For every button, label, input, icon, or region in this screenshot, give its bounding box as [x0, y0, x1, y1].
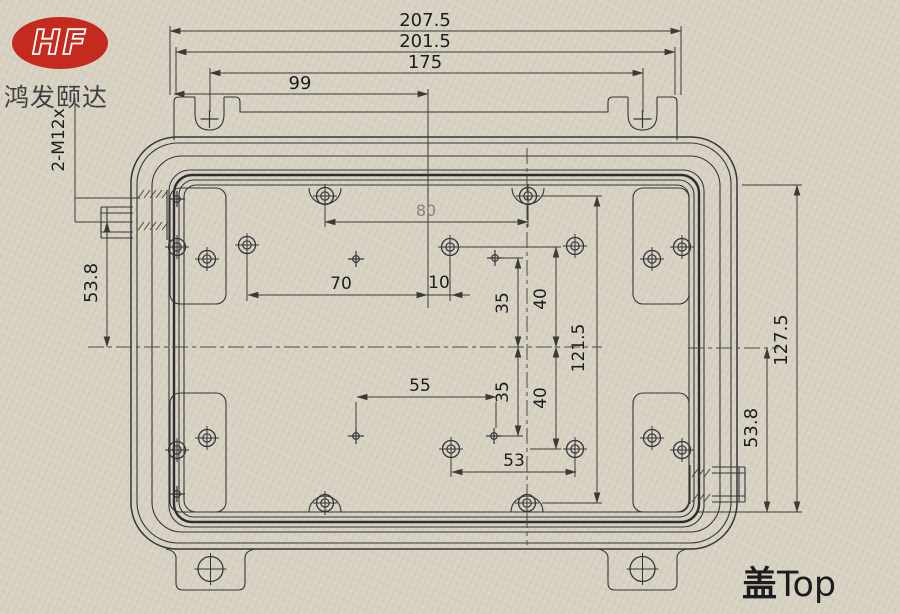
dim-label-35-upper: 35: [493, 292, 513, 314]
dim-label-slot-span: 175: [408, 52, 442, 73]
dim-label-53-8-left: 53.8: [81, 263, 102, 303]
dim-label-70: 70: [330, 274, 352, 294]
caption-cn: 盖: [742, 565, 777, 605]
dim-label-80: 80: [416, 201, 436, 220]
dim-label-53-8-right: 53.8: [741, 408, 762, 448]
company-name: 鸿发颐达: [4, 78, 136, 114]
dim-label-40-lower: 40: [531, 387, 551, 409]
dim-label-overall-width: 207.5: [399, 10, 451, 31]
dim-label-53: 53: [503, 451, 525, 471]
ear-screw-hole: [195, 553, 227, 585]
dim-label-99: 99: [289, 73, 312, 94]
dim-label-127-5: 127.5: [771, 314, 792, 366]
dim-label-55: 55: [409, 376, 431, 396]
hf-logo: HF: [12, 17, 108, 69]
dim-label-40-upper: 40: [531, 288, 551, 310]
dim-label-121-5: 121.5: [569, 324, 589, 373]
caption-en: Top: [777, 565, 836, 605]
drawing-caption: 盖Top: [742, 556, 836, 607]
body-outline: [131, 137, 737, 549]
dim-label-35-lower: 35: [493, 381, 513, 403]
thread-spec-label: 2-M12x: [49, 108, 69, 171]
drawing-sheet: 207.5 201.5 175 99 2-M12x 53.8 80: [0, 0, 900, 614]
slot-center-mark: [201, 110, 219, 128]
slot-center-mark: [634, 110, 652, 128]
ear-screw-hole: [627, 553, 659, 585]
top-flange: [174, 97, 677, 140]
logo-monogram: HF: [32, 23, 88, 63]
dim-label-flange-width: 201.5: [399, 31, 451, 52]
dim-label-10: 10: [428, 273, 450, 293]
screw-holes: [165, 184, 694, 515]
bottom-ears: [166, 549, 687, 590]
